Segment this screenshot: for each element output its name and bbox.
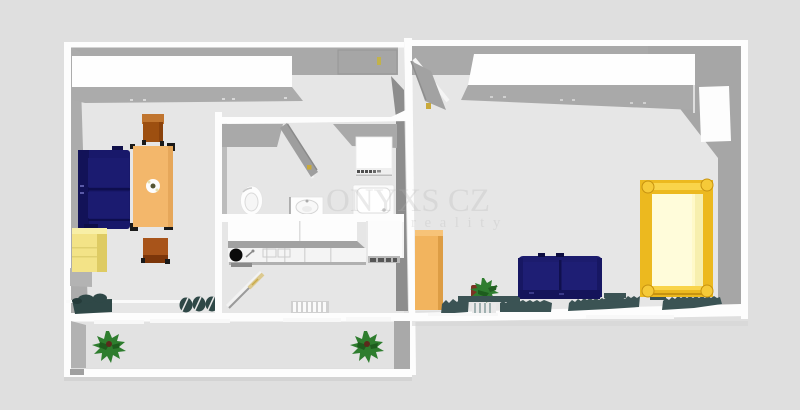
svg-text:reality: reality [411,215,509,231]
svg-text:ONYXS CZ: ONYXS CZ [326,183,490,219]
